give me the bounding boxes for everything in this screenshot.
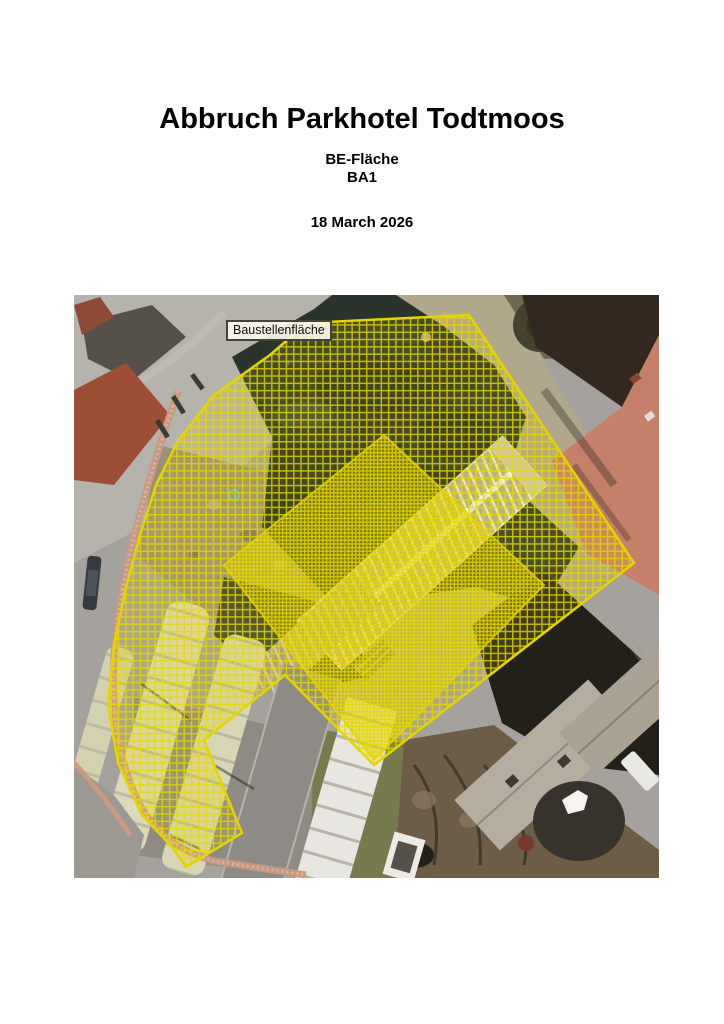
subtitle-block: BE-Fläche BA1 bbox=[0, 151, 724, 187]
aerial-photo-graphic bbox=[74, 295, 659, 878]
subtitle-line-2: BA1 bbox=[0, 169, 724, 187]
document-date: 18 March 2026 bbox=[0, 214, 724, 231]
subtitle-line-1: BE-Fläche bbox=[0, 151, 724, 169]
document-page: Abbruch Parkhotel Todtmoos BE-Fläche BA1… bbox=[0, 0, 724, 1024]
area-label: Baustellenfläche bbox=[226, 320, 332, 341]
page-title: Abbruch Parkhotel Todtmoos bbox=[0, 103, 724, 136]
site-aerial-photo: Baustellenfläche bbox=[74, 295, 659, 878]
